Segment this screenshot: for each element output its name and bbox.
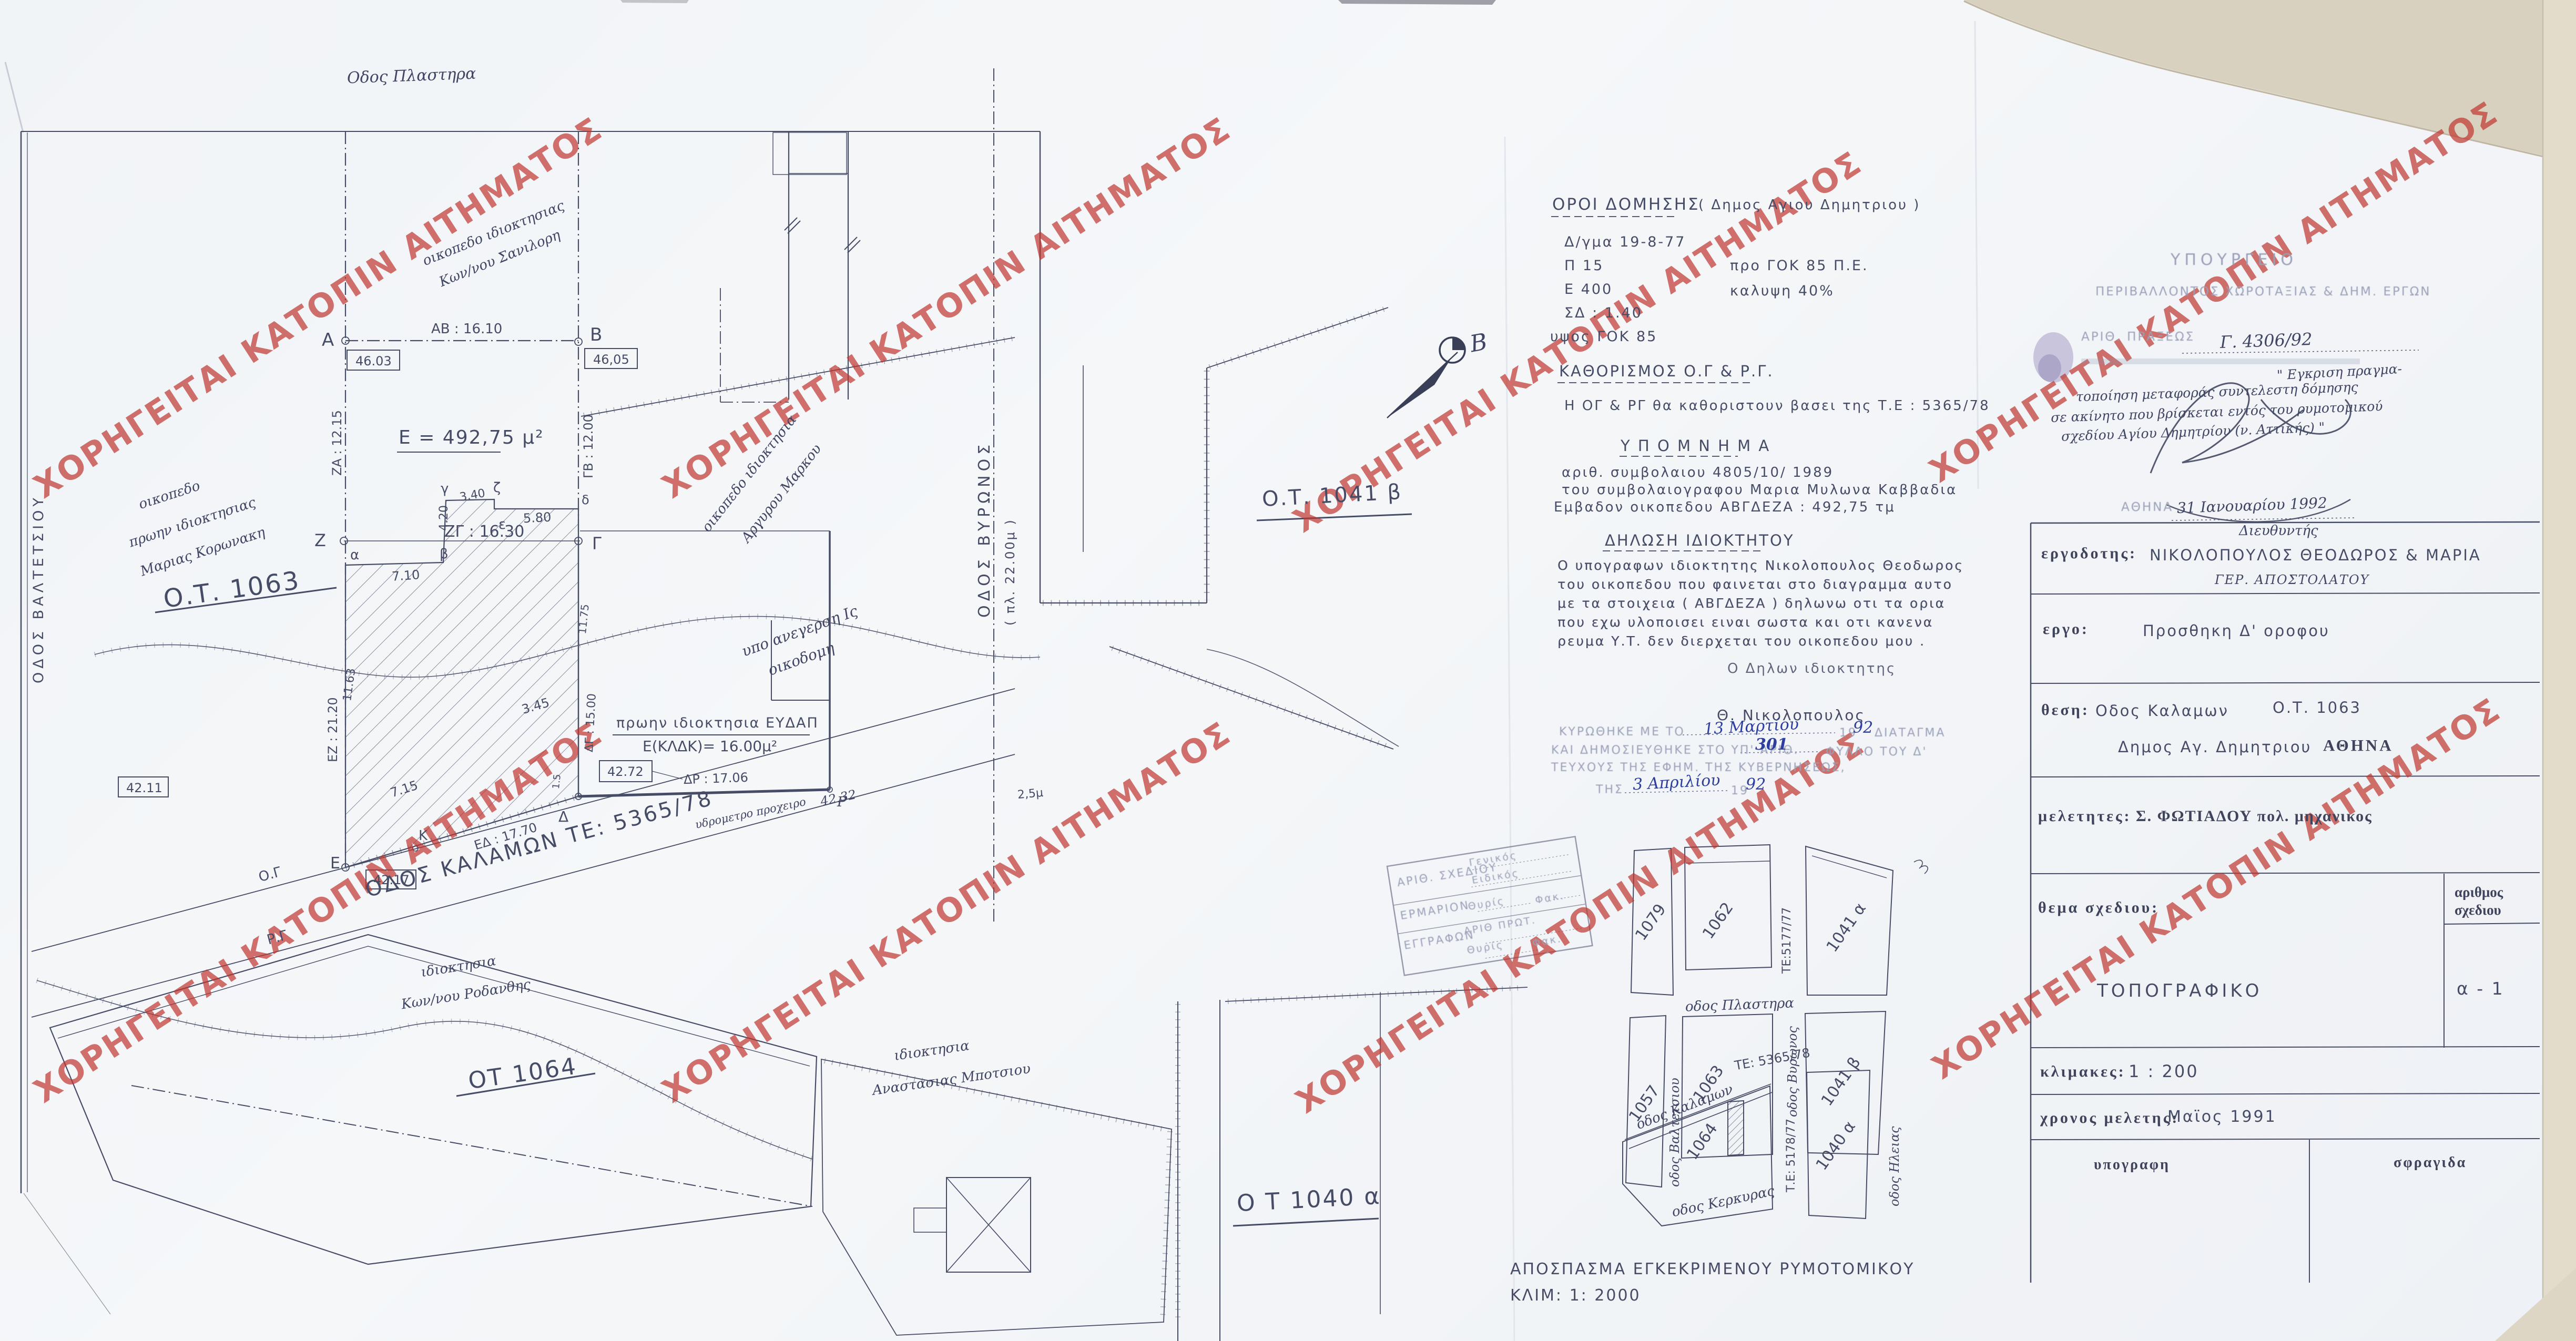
street-valtetsiou-label: ΟΔΟΣ ΒΑΛΤΕΤΣΙΟΥ — [30, 494, 47, 683]
inset-s-vyronos: οδος Βυρωνος — [1786, 1026, 1800, 1117]
terms-l2b: προ ΓΟΚ 85 Π.Ε. — [1730, 258, 1869, 274]
tb-thema-label: θεμα σχεδιου: — [2038, 899, 2159, 917]
dim-za: ΖΑ : 12.15 — [330, 410, 345, 476]
point-d-label: Δ — [558, 808, 568, 825]
tb-thesi-dimos: Δημος Αγ. Δημητριου — [2118, 739, 2312, 756]
tb-ypografi: υπογραφη — [2094, 1156, 2170, 1173]
point-g-label: Γ — [592, 534, 602, 554]
approval-faded-row — [2081, 359, 2360, 364]
dim-gb: ΓΒ : 12.00 — [582, 414, 596, 478]
approval-ministry-2: ΠΕΡΙΒΑΛΛΟΝΤΟΣ ΧΩΡΟΤΑΞΙΑΣ & ΔΗΜ. ΕΡΓΩΝ — [2095, 285, 2431, 299]
elev-a-value: 46.03 — [355, 354, 392, 369]
neighbor-structures — [581, 131, 1015, 416]
point-alpha-label: α — [350, 548, 359, 564]
dim-ez: ΕΖ : 21.20 — [326, 697, 341, 762]
approval-city: ΑΘΗΝΑ — [2121, 500, 2173, 514]
point-e-label: Ε — [330, 855, 340, 873]
declaration-p4: που εχω υλοποισει ειναι σωστα και οτι κα… — [1557, 615, 1933, 630]
note-eydap-1: πρωην ιδιοκτησια ΕΥΔΑΠ — [616, 715, 819, 731]
elev-k-value: 42.11 — [126, 781, 162, 796]
ratification-l4-pre: ΤΗΣ — [1596, 783, 1624, 796]
tb-ergodotis-label: εργοδοτης: — [2041, 545, 2137, 563]
registry-r3-b: Θυρίς — [1466, 939, 1504, 957]
ypomnima-l2: του συμβολαιογραφου Μαρια Μυλωνα Καββαδι… — [1562, 483, 1957, 498]
approval-signer: ΓΕΡ. ΑΠΟΣΤΟΛΑΤΟΥ — [2215, 573, 2369, 588]
ratification-l1-post: ΔΙΑΤΑΓΜΑ — [1875, 726, 1946, 740]
drawing-linework — [0, 0, 2576, 1341]
inset-s-te5177: ΤΕ:5177/77 — [1780, 907, 1794, 974]
dim-710: 7.10 — [391, 568, 420, 584]
point-z-label: Ζ — [314, 531, 326, 550]
tb-ergo-label: εργο: — [2043, 620, 2089, 639]
ypomnima-l1: αριθ. συμβολαιου 4805/10/ 1989 — [1562, 465, 1834, 481]
inset-s-ilias: οδος Ηλειας — [1888, 1127, 1902, 1207]
terms-l3b: καλυψη 40% — [1730, 283, 1835, 299]
kathorismos-title: ΚΑΘΟΡΙΣΜΟΣ Ο.Γ & Ρ.Γ. — [1559, 363, 1774, 380]
point-b-label: Β — [590, 325, 602, 345]
ratification-l2-hand: 301 — [1755, 736, 1788, 754]
dim-580: 5.80 — [523, 510, 552, 526]
point-beta-label: β — [440, 547, 449, 562]
inset-caption-2: ΚΛΙΜ: 1: 2000 — [1510, 1287, 1641, 1305]
inset-s-te5178: Τ.Ε: 5178/77 — [1785, 1119, 1798, 1192]
point-eps-label: ε — [498, 517, 506, 533]
tb-thesi-ot: Ο.Τ. 1063 — [2273, 699, 2361, 716]
tb-xronos-label: χρονος μελετης: — [2040, 1109, 2179, 1128]
tb-klimakes-label: κλιμακες: — [2040, 1063, 2126, 1081]
dim-dr: ΔΡ : 17.06 — [684, 771, 749, 787]
ratification-l2-post: ΦΥΛΛΟ ΤΟΥ Δ' — [1826, 745, 1927, 759]
ypomnima-title: Υ Π Ο Μ Ν Η Μ Α — [1621, 437, 1770, 455]
elev-b-value: 46,05 — [593, 353, 629, 367]
elev-r-value: 42.72 — [607, 765, 644, 780]
approval-role: Διευθυντής — [2239, 524, 2318, 539]
ratification-l4-year-hand: 92 — [1746, 776, 1766, 794]
registry-r3-c: Φακ. — [1532, 934, 1563, 949]
declaration-p3: με τα στοιχεια ( ΑΒΓΔΕΖΑ ) δηλωνω οτι τα… — [1557, 596, 1946, 611]
registry-r2-a: Θυρίς — [1467, 896, 1505, 913]
registry-r3-a: ΑΡΙΘ ΠΡΩΤ. — [1463, 915, 1538, 937]
terms-l1: Δ/γμα 19-8-77 — [1564, 234, 1686, 250]
tb-arithmos-label-2: σχεδιου — [2455, 902, 2501, 918]
tb-thesi-label: θεση: — [2041, 701, 2090, 720]
point-k-label: Κ — [419, 828, 427, 844]
terms-l2a: Π 15 — [1564, 258, 1604, 274]
tb-meletites-label: μελετητες: — [2038, 807, 2132, 826]
elev-e-value: 42.17 — [373, 873, 410, 888]
terms-l5: υψος ΓΟΚ 85 — [1550, 329, 1657, 345]
declaration-signoff: Ο Δηλων ιδιοκτητης — [1727, 661, 1896, 677]
inset-s-valtetsiou: οδος Βαλτετσιου — [1668, 1078, 1683, 1187]
registry-r2-b: Φακ. — [1534, 890, 1565, 906]
tb-thema-value: ΤΟΠΟΓΡΑΦΙΚΟ — [2097, 981, 2262, 1001]
tb-thesi-city: ΑΘΗΝΑ — [2323, 736, 2394, 755]
tb-meletites-value: Σ. ΦΩΤΙΑΔΟΥ πολ. μηχανικος — [2136, 807, 2373, 826]
street-vyronos-label: ΟΔΟΣ ΒΥΡΩΝΟΣ — [976, 441, 994, 618]
approval-ministry-1: ΥΠΟΥΡΓΕΙΟ — [2171, 251, 2297, 270]
note-eydap-2: Ε(ΚΛΔΚ)= 16.00μ² — [643, 738, 777, 755]
declaration-p5: ρευμα Υ.Τ. δεν διερχεται του οικοπεδου μ… — [1557, 634, 1926, 649]
dim-zg: ΖΓ : 16.30 — [444, 523, 524, 541]
point-delta-label: δ — [582, 493, 589, 508]
tb-ergodotis-value: ΝΙΚΟΛΟΠΟΥΛΟΣ ΘΕΟΔΩΡΟΣ & ΜΑΡΙΑ — [2150, 547, 2481, 564]
tb-klimakes-value: 1 : 200 — [2129, 1062, 2199, 1081]
approval-praxis-label: ΑΡΙΘ. ΠΡΑΞΕΩΣ — [2081, 330, 2195, 344]
declaration-title: ΔΗΛΩΣΗ ΙΔΙΟΚΤΗΤΟΥ — [1605, 532, 1795, 549]
declaration-p2: του οικοπεδου που φαινεται στο διαγραμμα… — [1557, 577, 1953, 592]
terms-l4: ΣΔ : 1.40 — [1564, 305, 1643, 321]
tb-ergo-value: Προσθηκη Δ' οροφου — [2143, 622, 2330, 640]
tb-arithmos-label-1: αριθμος — [2455, 884, 2503, 900]
terms-l3a: Ε 400 — [1564, 281, 1613, 298]
dim-ab: ΑΒ : 16.10 — [431, 322, 502, 337]
dim-420: 4.20 — [437, 505, 451, 531]
approval-praxis-no: Γ. 4306/92 — [2219, 330, 2313, 352]
scanned-topographic-drawing: ΧΟΡΗΓΕΙΤΑΙ ΚΑΤΟΠΙΝ ΑΙΤΗΜΑΤΟΣ ΧΟΡΗΓΕΙΤΑΙ … — [0, 0, 2576, 1341]
tb-thesi-street: Οδος Καλαμων — [2095, 702, 2229, 720]
point-a-label: Α — [322, 330, 334, 351]
tb-arithmos-value: α - 1 — [2457, 979, 2504, 999]
terms-title: ΟΡΟΙ ΔΟΜΗΣΗΣ — [1552, 196, 1700, 214]
inset-caption-1: ΑΠΟΣΠΑΣΜΑ ΕΓΚΕΚΡΙΜΕΝΟΥ ΡΥΜΟΤΟΜΙΚΟΥ — [1510, 1261, 1915, 1279]
ratification-l1-pre: ΚΥΡΩΘΗΚΕ ΜΕ ΤΟ — [1559, 725, 1685, 739]
tb-sfragida: σφραγιδα — [2394, 1154, 2467, 1171]
street-vyronos-width: ( πλ. 22.00μ ) — [1003, 518, 1018, 626]
ypomnima-l3: Εμβαδον οικοπεδου ΑΒΓΔΕΖΑ : 492,75 τμ — [1554, 500, 1896, 516]
declaration-p1: Ο υπογραφων ιδιοκτητης Νικολοπουλος Θεοδ… — [1557, 558, 1964, 574]
parcel-area-label: Ε = 492,75 μ² — [399, 427, 544, 448]
kathorismos-body: Η ΟΓ & ΡΓ θα καθοριστουν βασει της Τ.Ε :… — [1564, 398, 1990, 414]
registry-r2-label: ΕΡΜΑΡΙΟΝ — [1399, 899, 1471, 923]
terms-title-suffix: ( Δημος Αγιου Δημητριου ) — [1698, 198, 1920, 213]
point-zeta-label: ζ — [493, 480, 501, 496]
tb-xronos-value: Μαϊος 1991 — [2167, 1108, 2277, 1127]
point-gamma-label: γ — [441, 482, 449, 497]
dim-15: 1.5 — [551, 774, 564, 790]
ratification-l1-year-hand: 92 — [1853, 719, 1873, 738]
dim-25: 2,5μ — [1017, 786, 1044, 802]
